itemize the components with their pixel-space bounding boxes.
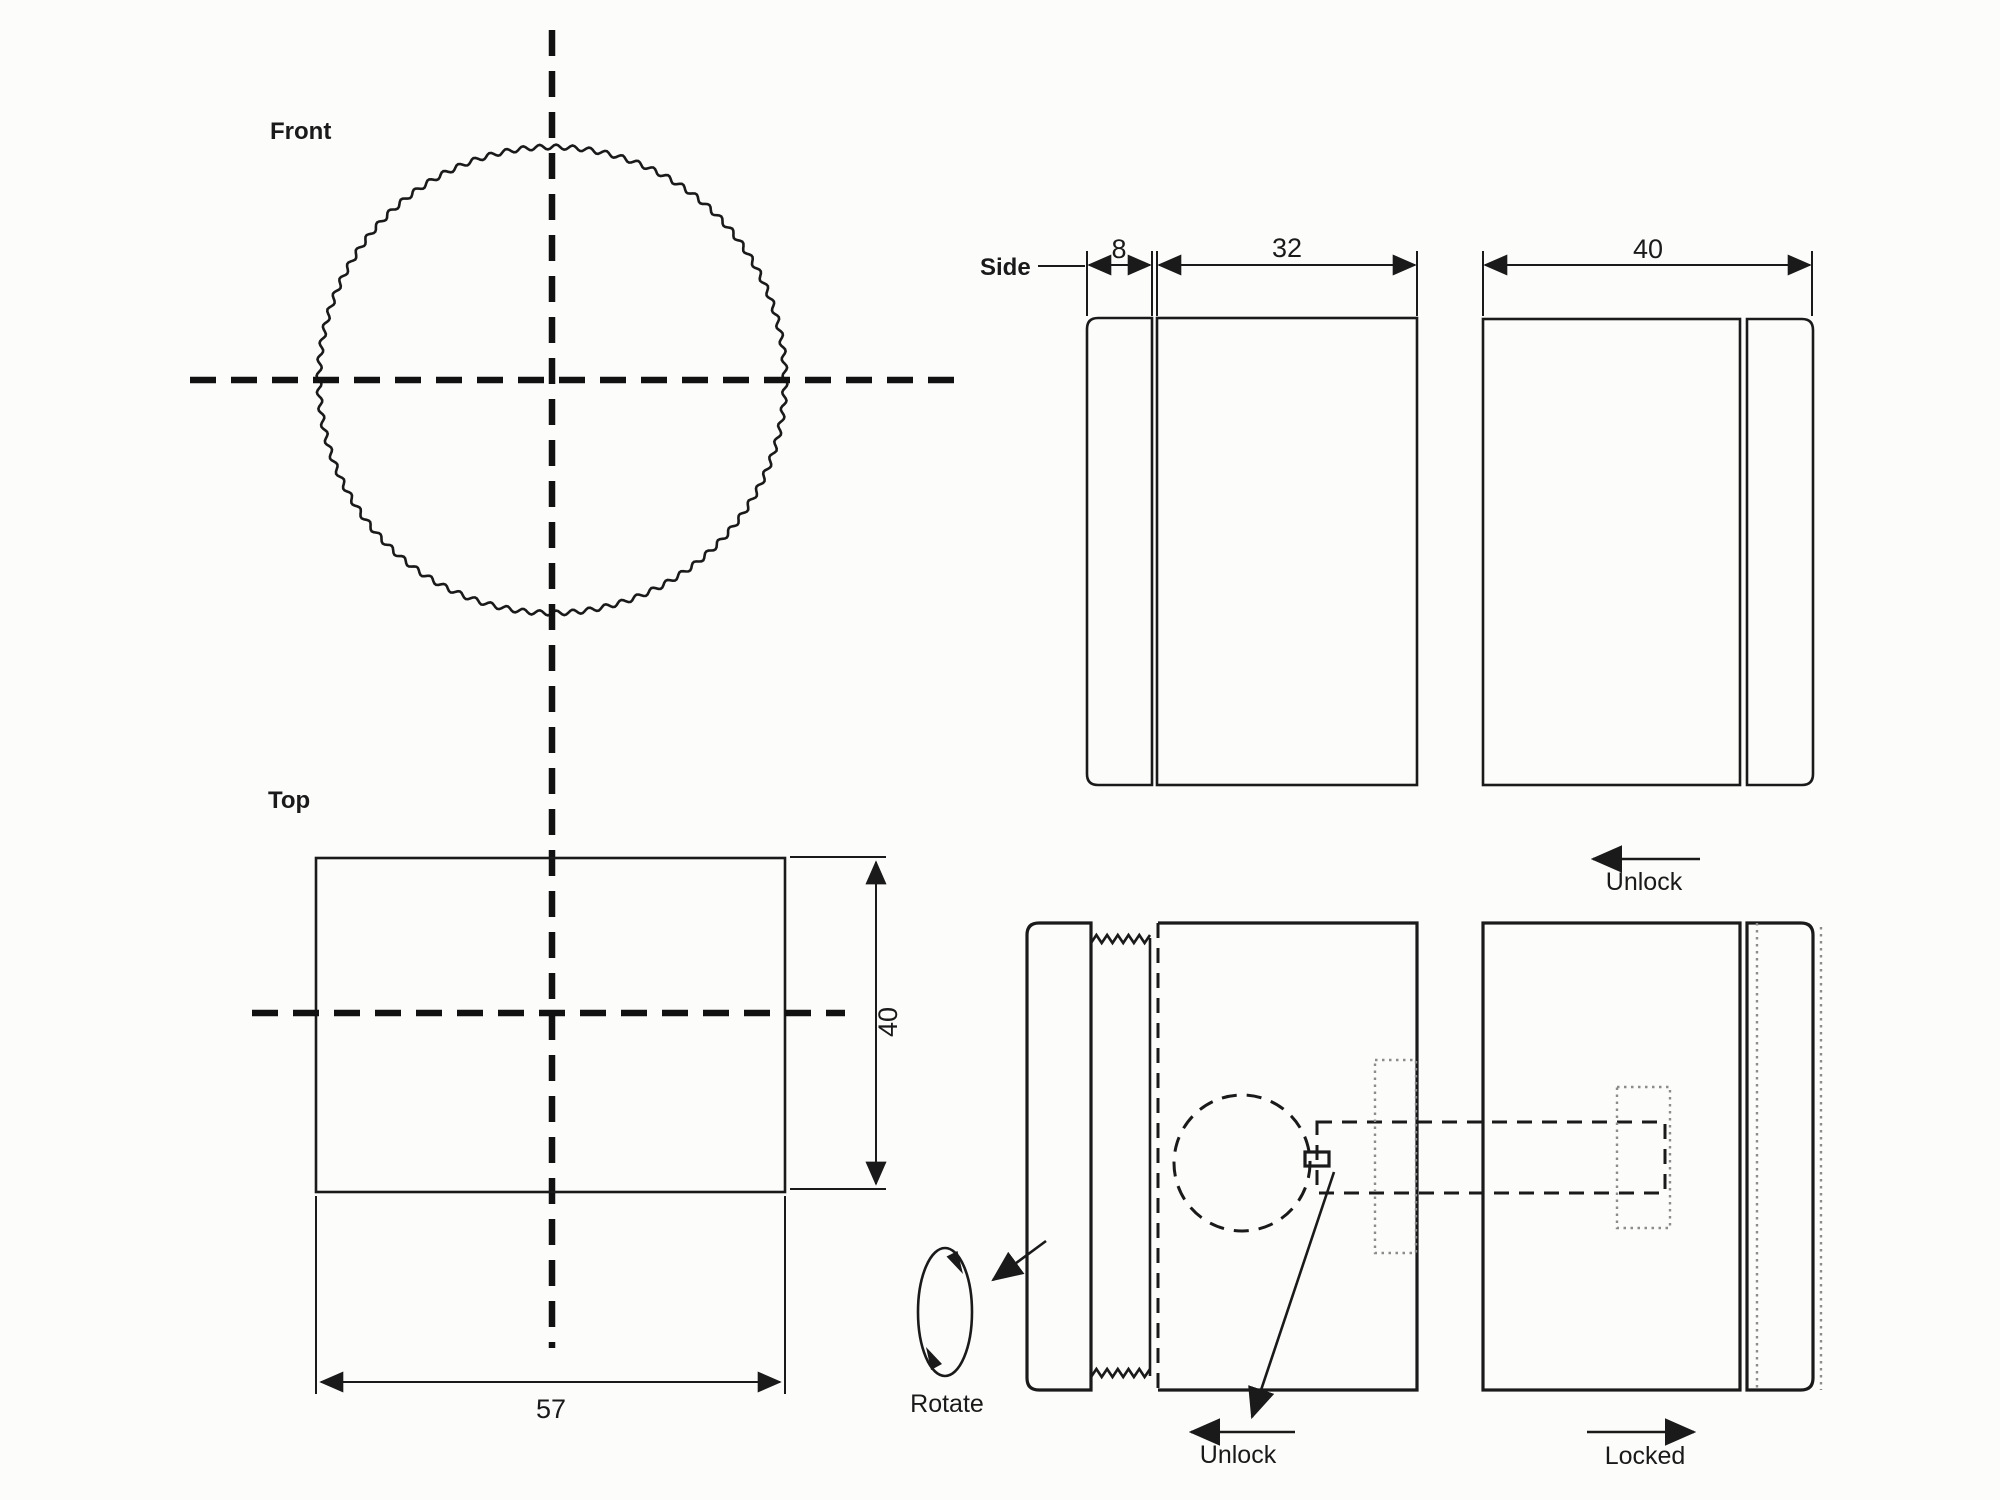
side-knob-cap-rect	[1087, 318, 1152, 785]
unlock-action-callout: Unlock	[1191, 1172, 1334, 1469]
hidden-bolt-rect	[1317, 1122, 1665, 1193]
rotate-label: Rotate	[910, 1390, 984, 1418]
rotate-arrowhead-bottom-icon	[926, 1347, 942, 1370]
knurl-zigzag-top	[1091, 935, 1150, 943]
dim-top-width-label: 57	[536, 1394, 566, 1424]
side-knob-cap-rect-right	[1747, 319, 1813, 785]
dim-top-depth-label: 40	[873, 1007, 903, 1037]
rotate-arrowhead-top-icon	[947, 1251, 964, 1274]
side-view-label: Side	[980, 254, 1031, 281]
dim-cap-width-label: 8	[1111, 234, 1126, 264]
mech-body-right	[1483, 923, 1740, 1390]
unlock-leader-arrow	[1252, 1172, 1334, 1417]
side-body-rect	[1157, 318, 1417, 785]
front-view-label: Front	[270, 118, 331, 145]
phantom-strike-left	[1375, 1060, 1416, 1253]
dimension-top-depth: 40	[790, 857, 903, 1189]
locked-callout: Locked	[1587, 1432, 1694, 1470]
knurl-zigzag-bottom	[1091, 1369, 1150, 1377]
mechanism-section-view	[1027, 923, 1821, 1390]
top-view-label: Top	[268, 787, 310, 814]
locked-label: Locked	[1605, 1442, 1686, 1470]
side-body-rect-right	[1483, 319, 1740, 785]
mech-knob-cap	[1027, 923, 1091, 1390]
phantom-strike-right	[1617, 1087, 1670, 1228]
rotate-ellipse-icon	[918, 1248, 972, 1376]
unlock-direction-label: Unlock	[1606, 868, 1683, 896]
mech-body-outline	[1158, 923, 1417, 1390]
dim-total-width-label: 40	[1633, 234, 1663, 264]
rotate-leader-arrow	[993, 1241, 1046, 1280]
drawing-sheet: Front Top 40 57 Side 8 32	[0, 0, 2000, 1500]
hidden-cam-circle	[1174, 1095, 1310, 1231]
unlock-direction-callout: Unlock	[1593, 859, 1700, 896]
technical-drawing-canvas: Front Top 40 57 Side 8 32	[0, 0, 2000, 1500]
dim-body-width-label: 32	[1272, 233, 1302, 263]
unlock-action-label: Unlock	[1200, 1441, 1277, 1469]
side-view: Side 8 32 40	[980, 233, 1813, 785]
